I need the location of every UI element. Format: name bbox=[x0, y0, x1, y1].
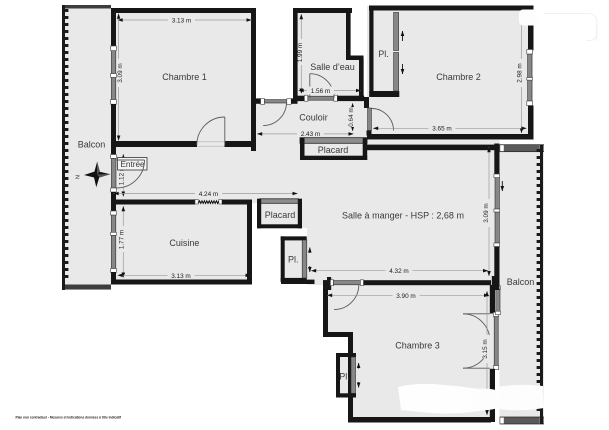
svg-text:Entrée: Entrée bbox=[120, 160, 145, 169]
svg-text:4.24 m: 4.24 m bbox=[199, 191, 219, 198]
svg-text:3.09 m: 3.09 m bbox=[483, 203, 490, 223]
svg-text:3.15 m: 3.15 m bbox=[482, 339, 489, 359]
svg-text:Chambre 1: Chambre 1 bbox=[162, 72, 207, 82]
svg-text:Salle d’eau: Salle d’eau bbox=[310, 62, 355, 72]
svg-text:3.13 m: 3.13 m bbox=[172, 18, 192, 25]
svg-text:1.99 m: 1.99 m bbox=[297, 43, 304, 63]
svg-text:2.98 m: 2.98 m bbox=[517, 63, 524, 83]
svg-text:4.32 m: 4.32 m bbox=[389, 268, 409, 275]
svg-text:Couloir: Couloir bbox=[299, 113, 328, 123]
svg-text:3.13 m: 3.13 m bbox=[171, 273, 191, 280]
svg-text:Pl.: Pl. bbox=[288, 255, 299, 265]
svg-text:Chambre 3: Chambre 3 bbox=[395, 341, 440, 351]
svg-text:2.43 m: 2.43 m bbox=[301, 131, 321, 138]
svg-text:3.09 m: 3.09 m bbox=[117, 63, 124, 83]
svg-text:Cuisine: Cuisine bbox=[169, 238, 199, 248]
svg-text:Placard: Placard bbox=[318, 145, 349, 155]
svg-text:Chambre 2: Chambre 2 bbox=[436, 72, 481, 82]
svg-text:Pl.: Pl. bbox=[378, 49, 389, 59]
svg-text:3.90 m: 3.90 m bbox=[396, 293, 416, 300]
svg-text:Placard: Placard bbox=[265, 210, 296, 220]
svg-text:Balcon: Balcon bbox=[507, 277, 535, 287]
svg-text:1.77 m: 1.77 m bbox=[119, 230, 126, 250]
svg-text:3.65 m: 3.65 m bbox=[432, 126, 452, 133]
svg-text:N: N bbox=[76, 175, 82, 179]
svg-text:Plan non contractuel - Mesures: Plan non contractuel - Mesures et indica… bbox=[16, 416, 122, 420]
svg-text:0.64 m: 0.64 m bbox=[348, 107, 355, 127]
svg-text:Pl.: Pl. bbox=[339, 371, 350, 381]
svg-text:1.56 m: 1.56 m bbox=[311, 88, 331, 95]
svg-text:Balcon: Balcon bbox=[78, 140, 106, 150]
svg-text:Salle à manger - HSP : 2,68 m: Salle à manger - HSP : 2,68 m bbox=[342, 211, 464, 221]
